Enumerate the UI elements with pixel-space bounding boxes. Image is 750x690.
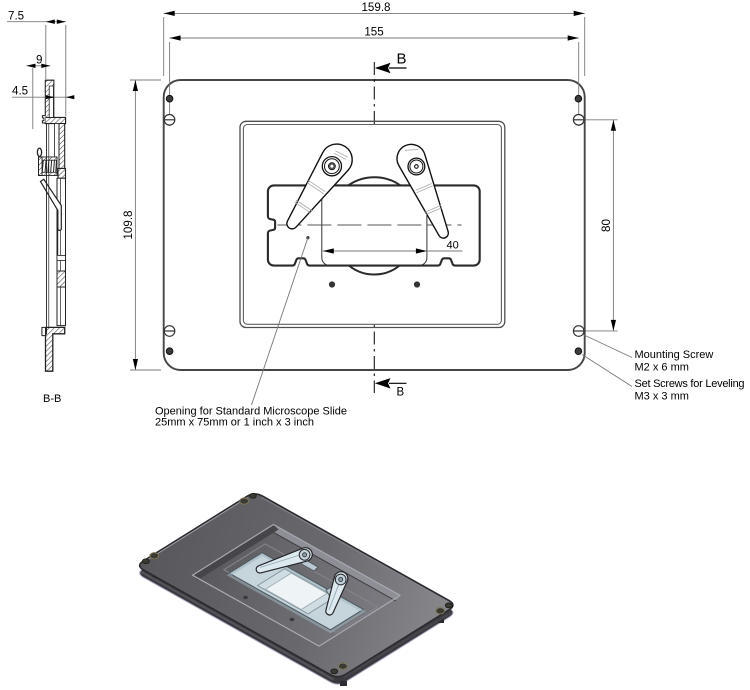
svg-text:Mounting Screw: Mounting Screw bbox=[635, 349, 714, 361]
svg-text:B: B bbox=[397, 51, 407, 68]
svg-text:7.5: 7.5 bbox=[8, 10, 24, 23]
svg-text:40: 40 bbox=[447, 239, 459, 251]
svg-text:109.8: 109.8 bbox=[122, 210, 135, 239]
svg-text:80: 80 bbox=[600, 219, 613, 232]
svg-text:B-B: B-B bbox=[43, 393, 61, 405]
svg-text:M2 x 6 mm: M2 x 6 mm bbox=[635, 362, 689, 374]
svg-text:155: 155 bbox=[364, 26, 383, 39]
svg-text:B: B bbox=[397, 387, 405, 399]
svg-text:Set Screws for Leveling: Set Screws for Leveling bbox=[635, 378, 745, 390]
svg-text:4.5: 4.5 bbox=[12, 85, 28, 98]
svg-text:159.8: 159.8 bbox=[361, 1, 390, 14]
svg-text:25mm x 75mm or 1 inch x 3 inch: 25mm x 75mm or 1 inch x 3 inch bbox=[155, 417, 314, 429]
svg-text:M3 x 3 mm: M3 x 3 mm bbox=[635, 391, 689, 403]
svg-text:9: 9 bbox=[36, 54, 42, 67]
